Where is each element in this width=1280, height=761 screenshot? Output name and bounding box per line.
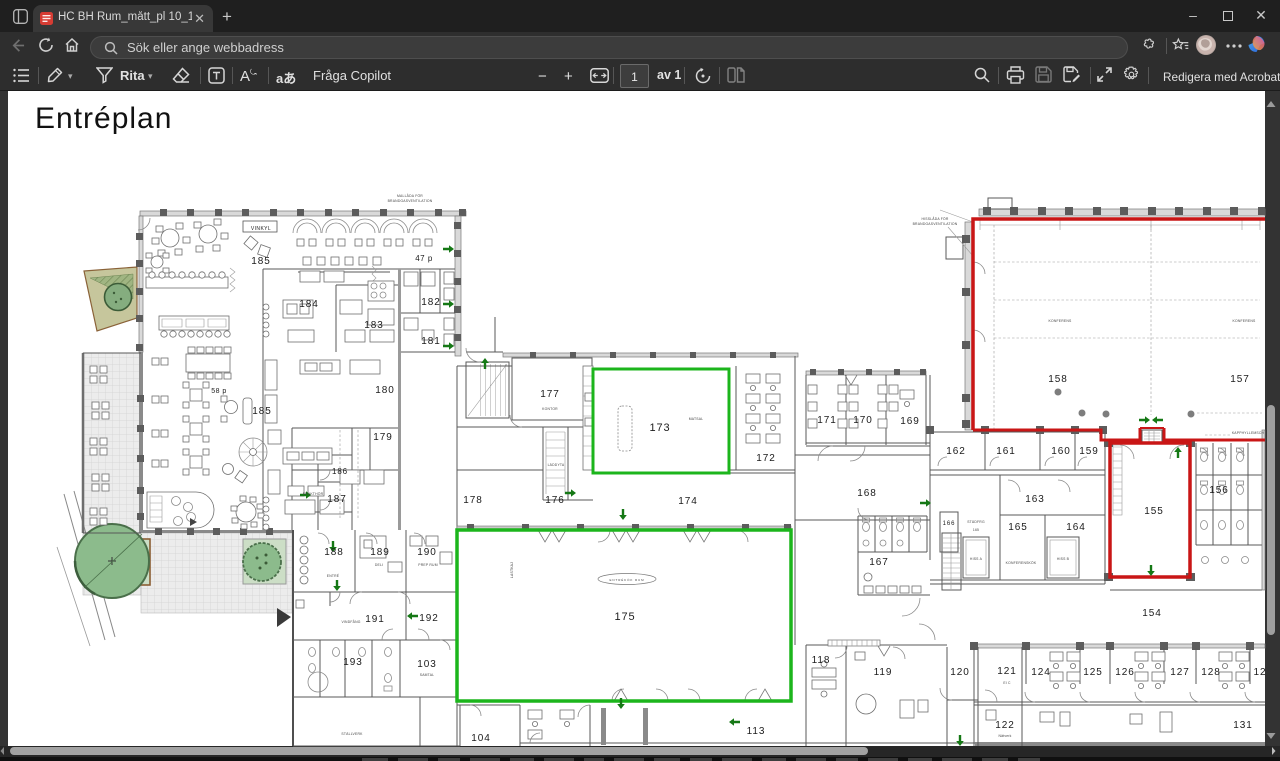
svg-text:VINKYL: VINKYL [251, 226, 271, 232]
svg-text:ENTRÉKÖK RUM: ENTRÉKÖK RUM [610, 577, 645, 582]
svg-text:192: 192 [419, 613, 438, 624]
svg-text:169: 169 [900, 416, 919, 427]
svg-text:167: 167 [869, 557, 888, 568]
svg-text:159: 159 [1079, 446, 1098, 457]
svg-text:171: 171 [817, 415, 836, 426]
svg-text:KONFERENS: KONFERENS [1233, 319, 1256, 323]
svg-text:ENTRÉ: ENTRÉ [327, 573, 340, 578]
svg-text:165: 165 [1008, 522, 1027, 533]
svg-text:163: 163 [1025, 494, 1044, 505]
svg-text:186: 186 [332, 467, 348, 476]
svg-text:176: 176 [545, 495, 564, 506]
svg-text:103: 103 [417, 659, 436, 670]
svg-text:173: 173 [649, 422, 670, 434]
svg-text:LÄDDYTA: LÄDDYTA [548, 463, 565, 467]
svg-text:131: 131 [1233, 720, 1252, 731]
svg-text:181: 181 [421, 336, 440, 347]
svg-text:126: 126 [1115, 667, 1134, 678]
svg-text:El C: El C [1003, 681, 1011, 685]
svg-text:193: 193 [343, 657, 362, 668]
svg-text:158: 158 [1048, 374, 1067, 385]
svg-text:156: 156 [1209, 485, 1228, 496]
svg-text:164: 164 [1066, 522, 1085, 533]
svg-text:183: 183 [364, 320, 383, 331]
svg-text:BRANDGASVENTILATION: BRANDGASVENTILATION [388, 199, 433, 203]
svg-text:127: 127 [1170, 667, 1189, 678]
svg-text:FRUKTHÖR: FRUKTHÖR [303, 492, 324, 496]
svg-text:177: 177 [540, 389, 559, 400]
svg-text:128: 128 [1201, 667, 1220, 678]
svg-text:KONFERENS: KONFERENS [1049, 319, 1072, 323]
svg-text:180: 180 [375, 385, 394, 396]
svg-text:119: 119 [874, 667, 893, 678]
svg-text:185: 185 [252, 406, 271, 417]
svg-text:47 p: 47 p [415, 254, 433, 263]
svg-text:MALLÅDA FÖR: MALLÅDA FÖR [397, 193, 423, 198]
svg-text:168: 168 [857, 488, 876, 499]
svg-text:PREP RUM: PREP RUM [418, 563, 437, 567]
svg-text:166: 166 [943, 521, 956, 527]
svg-text:160: 160 [1051, 446, 1070, 457]
svg-text:Nätverk: Nätverk [998, 734, 1011, 738]
svg-text:STÄLLVERK: STÄLLVERK [341, 732, 363, 736]
svg-text:121: 121 [997, 666, 1016, 677]
svg-text:174: 174 [678, 496, 697, 507]
svg-text:191: 191 [365, 614, 384, 625]
svg-text:KAPPHYLLEMSCH: KAPPHYLLEMSCH [1232, 431, 1265, 435]
svg-text:VINDFÅNG: VINDFÅNG [341, 619, 360, 624]
svg-text:178: 178 [463, 495, 482, 506]
svg-text:182: 182 [421, 297, 440, 308]
svg-text:165: 165 [973, 528, 979, 532]
svg-text:184: 184 [299, 299, 318, 310]
svg-text:KONTOR: KONTOR [542, 407, 558, 411]
svg-text:SAMTAL: SAMTAL [420, 673, 435, 677]
svg-text:175: 175 [614, 611, 635, 623]
svg-text:STÄDFRG: STÄDFRG [967, 520, 985, 524]
svg-text:190: 190 [417, 547, 436, 558]
svg-text:Entréplan: Entréplan [35, 102, 172, 135]
svg-text:155: 155 [1144, 506, 1163, 517]
svg-text:113: 113 [747, 726, 766, 737]
svg-text:162: 162 [946, 446, 965, 457]
svg-text:161: 161 [996, 446, 1015, 457]
svg-text:KONFERENSKÖK: KONFERENSKÖK [1006, 561, 1037, 565]
svg-text:188: 188 [324, 547, 343, 558]
svg-text:170: 170 [853, 415, 872, 426]
svg-text:HISS B: HISS B [1057, 557, 1070, 561]
svg-text:185: 185 [251, 256, 270, 267]
svg-text:157: 157 [1230, 374, 1249, 385]
svg-text:LASTKAJ: LASTKAJ [510, 562, 514, 578]
svg-text:104: 104 [471, 733, 490, 744]
svg-text:125: 125 [1083, 667, 1102, 678]
svg-text:187: 187 [327, 494, 346, 505]
svg-text:DELI: DELI [375, 563, 383, 567]
svg-text:12: 12 [1254, 667, 1267, 678]
svg-text:HISS A: HISS A [970, 557, 983, 561]
svg-text:BRANDGASVENTILATION: BRANDGASVENTILATION [913, 222, 958, 226]
svg-text:189: 189 [370, 547, 389, 558]
svg-text:179: 179 [373, 432, 392, 443]
svg-text:120: 120 [950, 667, 969, 678]
svg-text:58 p: 58 p [211, 388, 227, 395]
svg-text:MATSAL: MATSAL [689, 417, 704, 421]
svg-text:154: 154 [1142, 608, 1161, 619]
svg-text:124: 124 [1031, 667, 1050, 678]
svg-text:172: 172 [756, 453, 775, 464]
svg-text:122: 122 [995, 720, 1014, 731]
svg-text:HISSLÅDA FÖR: HISSLÅDA FÖR [921, 216, 948, 221]
svg-text:118: 118 [812, 655, 831, 666]
